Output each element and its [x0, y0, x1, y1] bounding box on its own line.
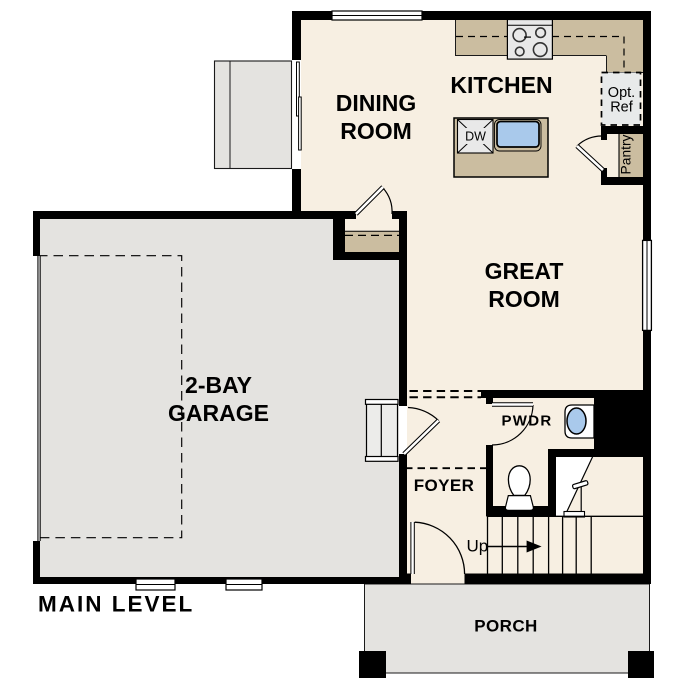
svg-text:KITCHEN: KITCHEN	[450, 72, 552, 98]
svg-text:Pantry: Pantry	[619, 134, 634, 174]
svg-text:Up: Up	[467, 537, 489, 556]
svg-text:DINING: DINING	[336, 90, 417, 116]
svg-text:PORCH: PORCH	[474, 616, 537, 635]
svg-text:MAIN LEVEL: MAIN LEVEL	[38, 591, 194, 616]
svg-text:Opt.: Opt.	[608, 85, 635, 101]
svg-text:ROOM: ROOM	[488, 286, 560, 312]
svg-text:GARAGE: GARAGE	[168, 400, 269, 426]
svg-text:DW: DW	[465, 130, 486, 144]
svg-text:FOYER: FOYER	[414, 476, 475, 495]
svg-text:PWDR: PWDR	[501, 413, 552, 430]
svg-text:Ref: Ref	[610, 100, 634, 116]
svg-text:GREAT: GREAT	[485, 258, 564, 284]
svg-text:2-BAY: 2-BAY	[185, 372, 252, 398]
svg-text:ROOM: ROOM	[340, 118, 412, 144]
